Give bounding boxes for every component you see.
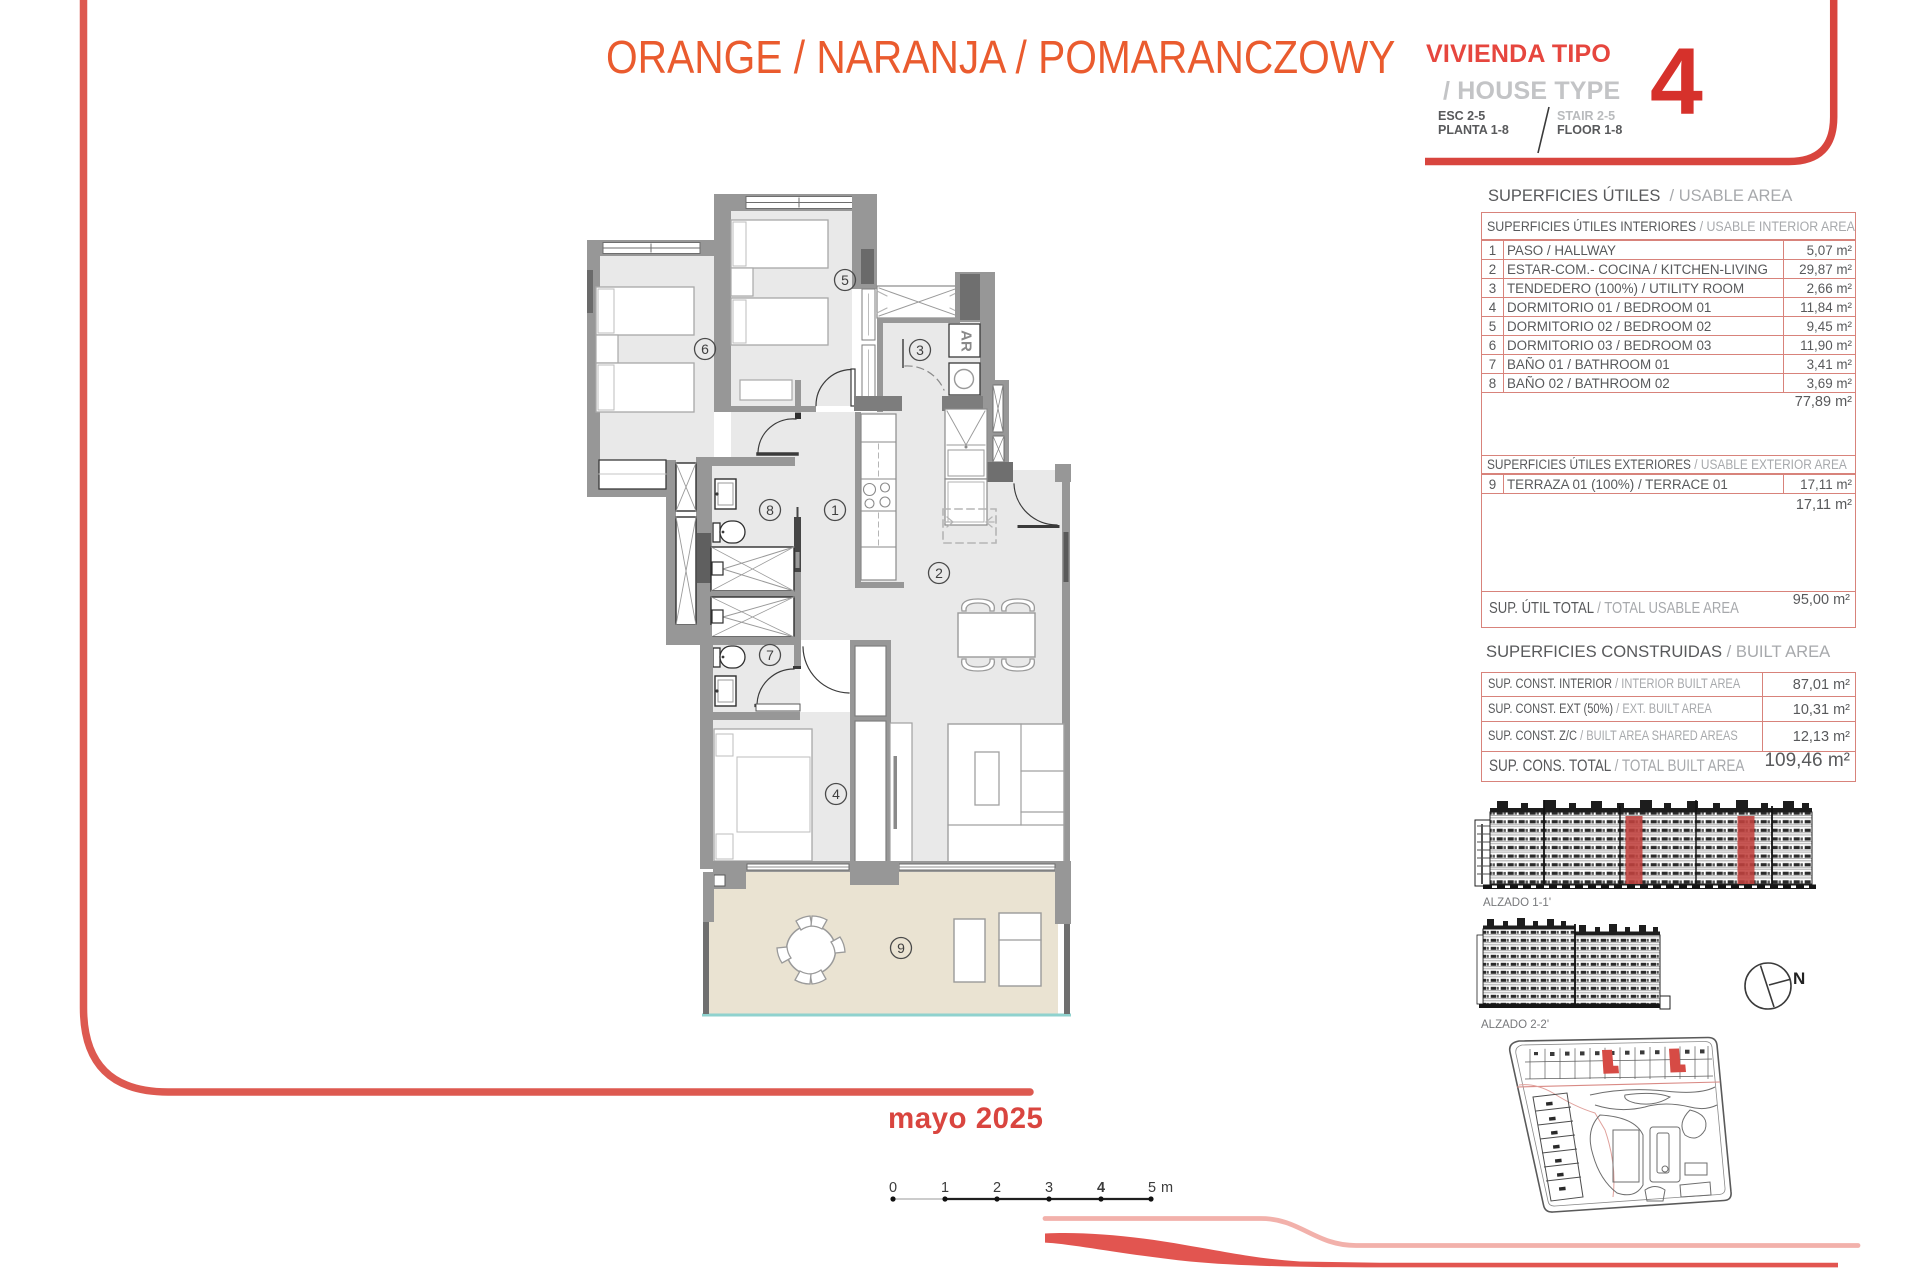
svg-text:N: N: [1793, 969, 1805, 988]
svg-text:ALZADO 2-2': ALZADO 2-2': [1481, 1019, 1549, 1031]
svg-text:ALZADO 1-1': ALZADO 1-1': [1483, 897, 1551, 909]
